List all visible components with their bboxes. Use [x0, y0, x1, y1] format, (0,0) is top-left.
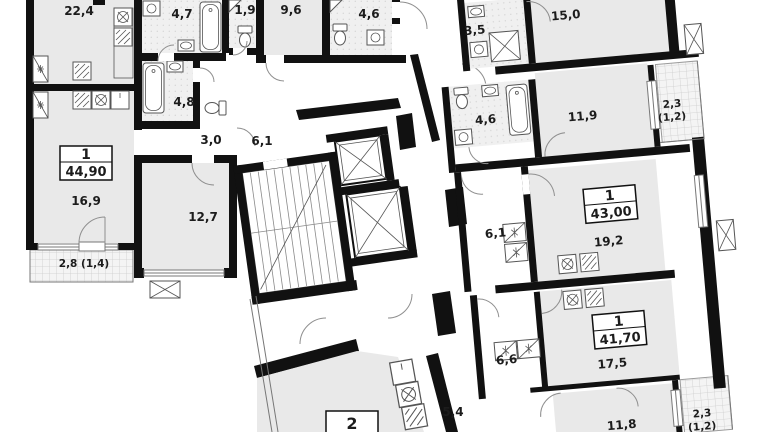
bathtub-icon — [200, 2, 221, 52]
unit-2-label-box: 2 — [326, 411, 378, 432]
room-label-11-9: 11,9 — [567, 108, 598, 125]
room-label-16-9: 16,9 — [71, 194, 101, 208]
room-label-17-5: 17,5 — [597, 355, 628, 372]
stove-icon — [580, 252, 600, 272]
room-label-22-4: 22,4 — [64, 4, 94, 18]
unit-44-area: 44,90 — [65, 165, 106, 180]
unit-43-rooms: 1 — [604, 188, 615, 205]
bathtub-icon — [506, 84, 531, 136]
elevator-1 — [335, 135, 387, 185]
sink-icon — [468, 5, 485, 17]
balcony-label-2-8: 2,8 (1,4) — [59, 258, 109, 270]
balcony-label-1-2-upper: (1,2) — [658, 110, 687, 124]
wardrobe-icon — [33, 56, 48, 82]
elevator-2 — [346, 187, 408, 258]
kitchen-sink-icon — [558, 254, 578, 274]
unit-2-rooms: 2 — [346, 414, 357, 432]
balcony-label-2-3-upper: 2,3 — [662, 98, 682, 112]
room-label-4-7: 4,7 — [171, 7, 192, 21]
room-label-11-8: 11,8 — [606, 417, 637, 432]
room-label-12-7: 12,7 — [188, 210, 218, 224]
kitchen-sink-icon — [396, 381, 422, 407]
stove-icon — [585, 288, 605, 308]
room-label-6-6: 6,6 — [495, 352, 517, 368]
washer-icon — [454, 129, 472, 145]
sink-icon — [167, 61, 183, 72]
closet-icon — [503, 223, 526, 243]
counter-icon — [390, 359, 416, 385]
bathtub-icon — [143, 63, 164, 113]
unit-2-doors — [300, 294, 412, 344]
room-label-3-5: 3,5 — [464, 22, 486, 38]
room-label-4-8: 4,8 — [173, 95, 194, 109]
washer-icon — [470, 41, 488, 57]
kitchen-sink-icon — [563, 290, 583, 310]
room-label-6-1-right: 6,1 — [484, 225, 506, 241]
room-label-15-0: 15,0 — [550, 7, 581, 24]
balcony-label-2-3-lower: 2,3 — [692, 407, 712, 421]
stove-icon — [73, 91, 91, 109]
stove-icon — [402, 404, 428, 430]
unit-44-rooms: 1 — [81, 147, 91, 163]
stair-elevator-core — [231, 125, 421, 305]
unit-44-label-box: 1 44,90 — [60, 146, 112, 180]
ac-basket-icon — [150, 281, 180, 298]
room-label-6-1-left: 6,1 — [251, 134, 272, 148]
room-label-19-2: 19,2 — [593, 233, 624, 250]
wardrobe-icon — [33, 92, 48, 118]
closet-icon — [517, 339, 540, 359]
kitchen-sink-icon — [114, 8, 132, 26]
room-label-9-6: 9,6 — [280, 3, 301, 17]
room-label-3-0: 3,0 — [200, 133, 221, 147]
toilet-icon — [205, 101, 226, 115]
toilet-icon — [333, 24, 347, 45]
unit-2-right-wall — [426, 353, 458, 432]
shower-icon — [489, 30, 520, 61]
counter-icon — [111, 91, 129, 109]
stove-icon — [73, 62, 91, 80]
floor-plan: 2 5,4 — [0, 0, 768, 432]
room-label-4-6-right: 4,6 — [474, 112, 496, 128]
sink-icon — [482, 84, 499, 96]
unit-41-label-box: 1 41,70 — [592, 311, 647, 349]
ac-basket-icon — [716, 219, 736, 250]
floor-plan-drawing: 2 5,4 — [0, 0, 768, 432]
unit-2-zone: 2 5,4 — [250, 294, 464, 432]
washer-icon — [367, 30, 384, 45]
kitchen-sink-icon — [92, 91, 110, 109]
unit-43-label-box: 1 43,00 — [583, 185, 638, 223]
toilet-icon — [238, 26, 252, 47]
stove-icon — [114, 28, 132, 46]
room-label-4-6-top: 4,6 — [358, 7, 379, 21]
ac-basket-icon — [684, 23, 704, 54]
central-section — [231, 0, 486, 336]
room-label-5-4: 5,4 — [442, 405, 463, 419]
unit-41-rooms: 1 — [613, 313, 624, 330]
closet-icon — [505, 243, 528, 263]
sink-icon — [178, 40, 194, 51]
washer-icon — [143, 1, 160, 16]
balcony-label-1-2-lower: (1,2) — [688, 420, 717, 432]
right-wing: 3,5 15,0 4,6 11,9 2,3 (1,2) 6,1 1 43,00 … — [433, 0, 751, 432]
room-label-1-9: 1,9 — [234, 3, 255, 17]
